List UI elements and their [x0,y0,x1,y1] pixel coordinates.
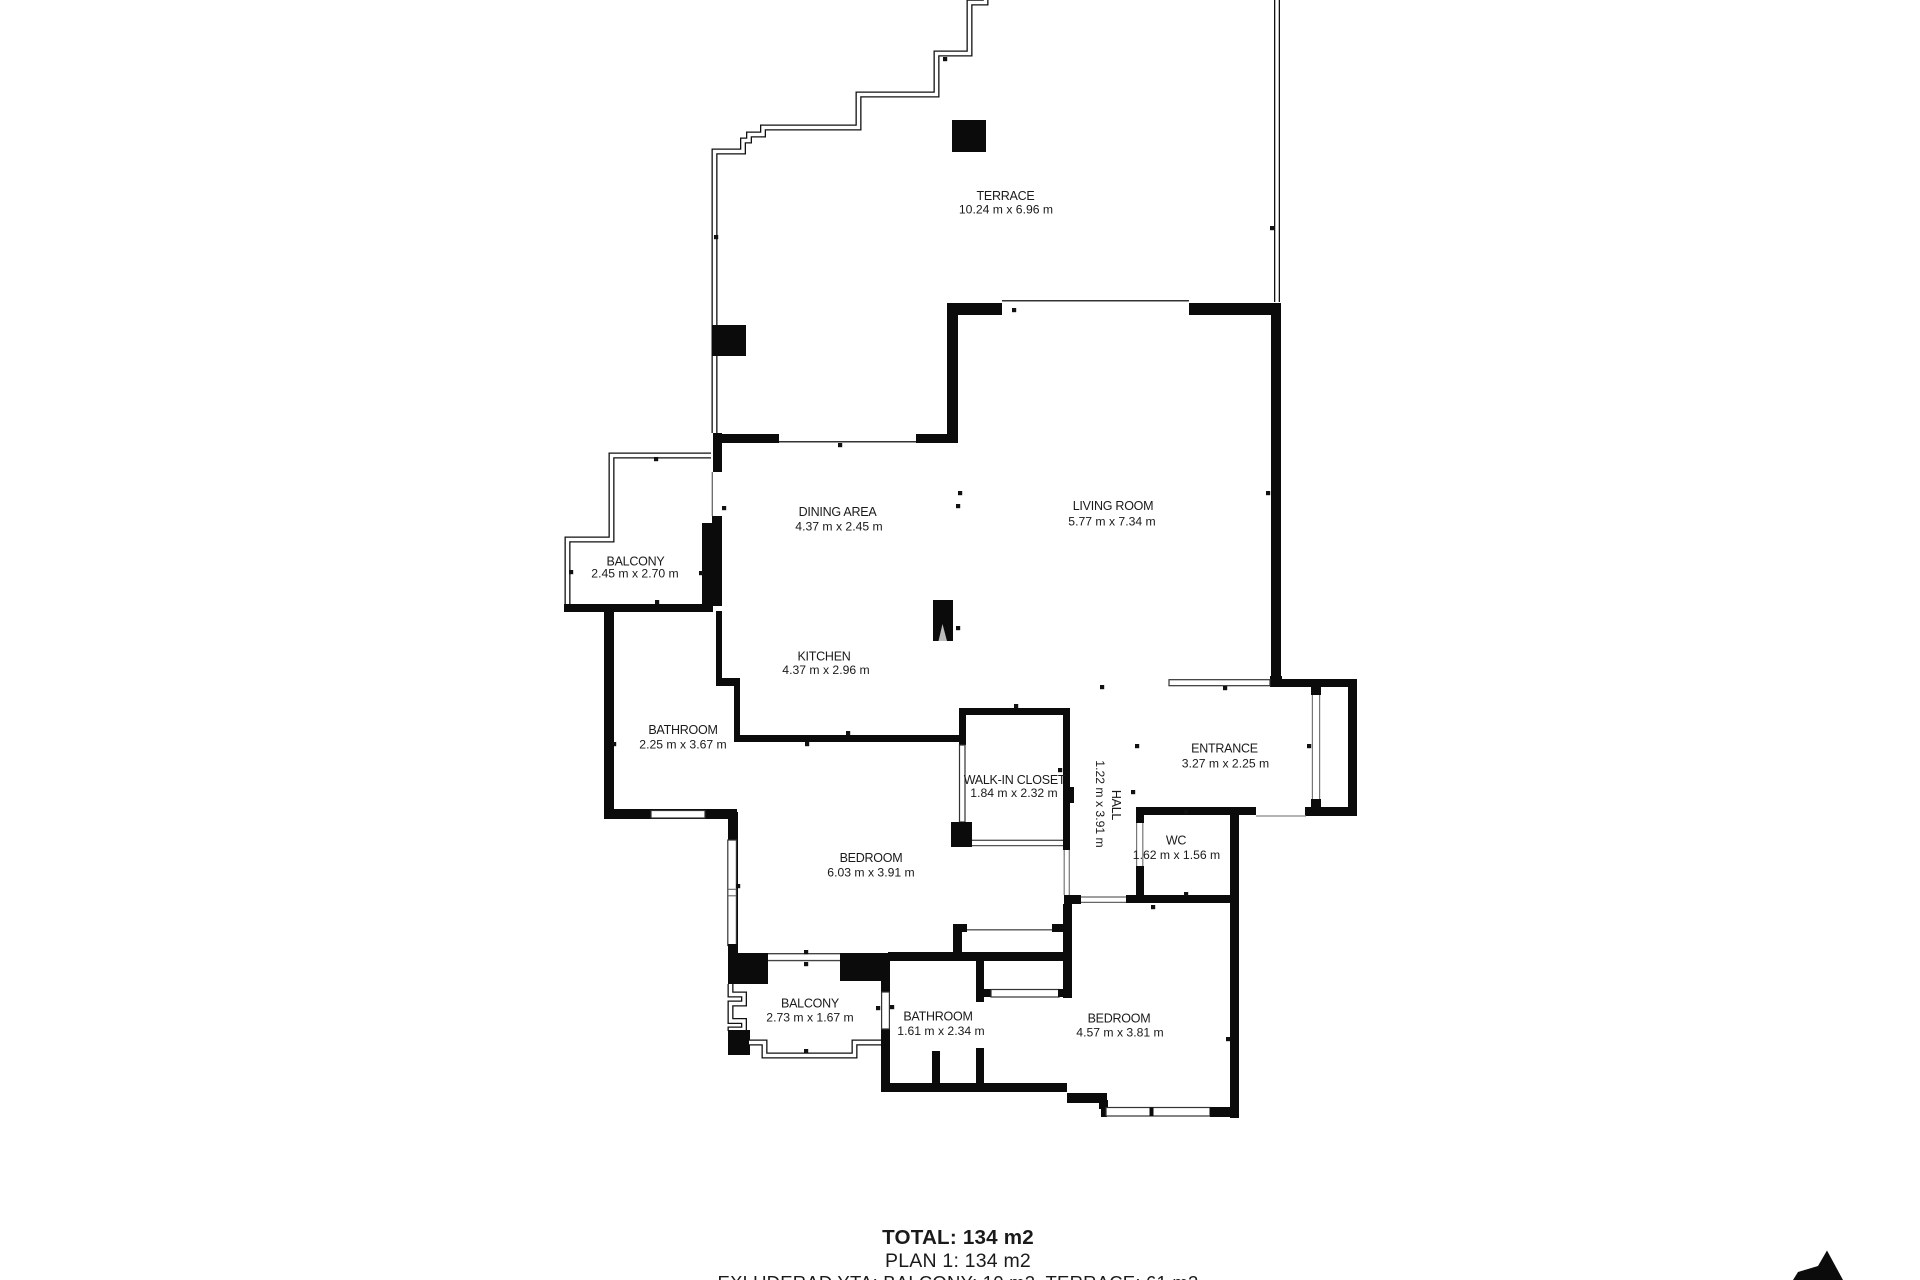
svg-text:WC: WC [1166,834,1187,848]
svg-text:3.27 m x 2.25 m: 3.27 m x 2.25 m [1182,757,1269,771]
svg-text:EXLUDERAD YTA: BALCONY: 10 m2,: EXLUDERAD YTA: BALCONY: 10 m2, TERRACE: … [718,1272,1199,1280]
svg-text:1.22 m x 3.91 m: 1.22 m x 3.91 m [1093,760,1107,847]
svg-text:BATHROOM: BATHROOM [648,723,717,737]
svg-text:1.62 m x 1.56 m: 1.62 m x 1.56 m [1133,848,1220,862]
svg-text:1.84 m x 2.32 m: 1.84 m x 2.32 m [970,786,1057,800]
svg-text:TERRACE: TERRACE [977,189,1035,203]
svg-text:LIVING ROOM: LIVING ROOM [1073,499,1154,513]
svg-text:2.25 m x 3.67 m: 2.25 m x 3.67 m [639,738,726,752]
svg-text:2.45 m x 2.70 m: 2.45 m x 2.70 m [591,567,678,581]
svg-text:BEDROOM: BEDROOM [1088,1012,1151,1026]
svg-text:4.37 m x 2.45 m: 4.37 m x 2.45 m [795,520,882,534]
svg-text:10.24 m x 6.96 m: 10.24 m x 6.96 m [959,203,1053,217]
svg-text:TOTAL: 134 m2: TOTAL: 134 m2 [882,1226,1034,1249]
svg-text:WALK-IN CLOSET: WALK-IN CLOSET [964,773,1066,787]
svg-text:PLAN 1: 134 m2: PLAN 1: 134 m2 [885,1250,1031,1272]
svg-text:BEDROOM: BEDROOM [840,851,903,865]
svg-text:KITCHEN: KITCHEN [797,650,850,664]
svg-text:1.61 m x 2.34 m: 1.61 m x 2.34 m [897,1024,984,1038]
svg-text:4.37 m x 2.96 m: 4.37 m x 2.96 m [782,663,869,677]
svg-text:2.73 m x 1.67 m: 2.73 m x 1.67 m [766,1011,853,1025]
svg-text:ENTRANCE: ENTRANCE [1191,742,1258,756]
svg-text:BALCONY: BALCONY [781,997,840,1011]
svg-text:6.03 m x 3.91 m: 6.03 m x 3.91 m [827,866,914,880]
svg-text:BATHROOM: BATHROOM [903,1010,972,1024]
svg-text:4.57 m x 3.81 m: 4.57 m x 3.81 m [1076,1026,1163,1040]
svg-text:DINING AREA: DINING AREA [799,505,878,519]
svg-text:HALL: HALL [1109,790,1123,821]
svg-text:5.77 m x 7.34 m: 5.77 m x 7.34 m [1068,515,1155,529]
